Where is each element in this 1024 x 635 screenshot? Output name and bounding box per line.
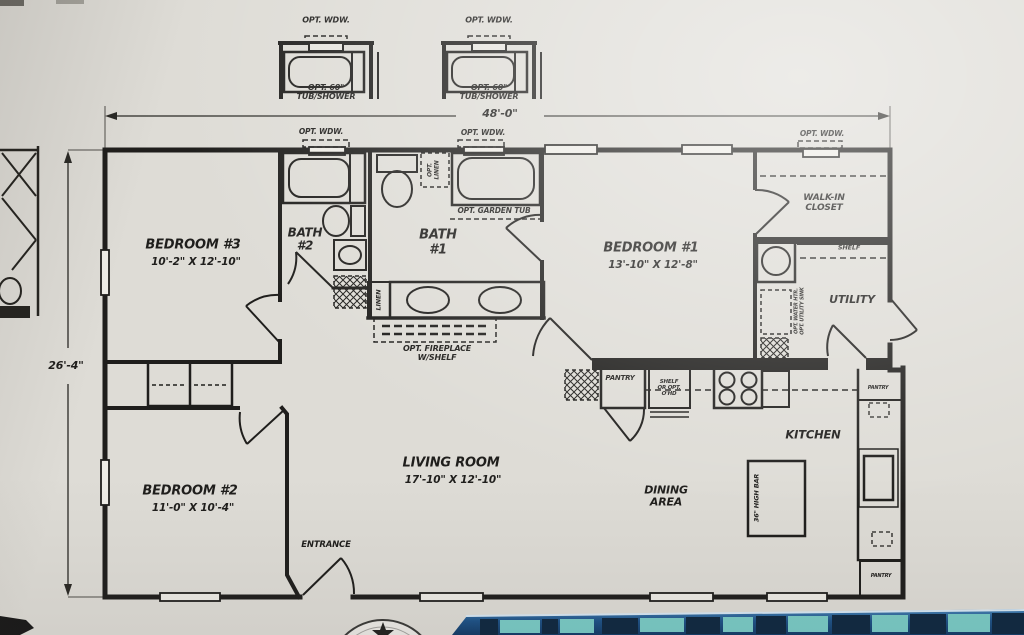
bedroom1-door [533,318,592,360]
bath2-toilet-tank [351,206,365,236]
vanity-sink-right [479,287,521,313]
label-high-bar: 36" HIGH BAR [753,474,760,522]
label-pantry-right: PANTRY [868,386,888,392]
label-pantry-bottom: PANTRY [871,574,891,580]
utility-door [827,325,866,358]
label-opt-window-detail1: OPT. WDW. [302,17,349,26]
entrance-door [303,558,354,595]
counter-section [762,371,789,407]
interior-walls [105,150,903,597]
room-dims-bedroom2: 11'-0" X 10'-4" [152,503,234,515]
bath1-toilet-tank [377,155,417,172]
scanned-floorplan-photo: OPT. WDW. OPT. 60" TUB/SHOWER OPT. WDW. … [0,0,1024,635]
label-opt-window-closet: OPT. WDW. [800,130,844,138]
label-tub-shower-detail2: OPT. 60" TUB/SHOWER [460,84,519,102]
utility-optional-appliance [761,338,788,358]
exterior-walls [105,150,903,597]
room-label-walkin-closet: WALK-IN CLOSET [803,193,844,213]
bath1-toilet [382,171,412,207]
refrigerator [864,456,893,500]
bath1-door [506,215,542,262]
walkin-closet-door [755,190,789,235]
bedroom3-door [246,295,280,343]
optional-dishwasher [565,370,598,400]
label-overall-depth: 26'-4" [48,360,83,372]
room-label-kitchen: KITCHEN [785,429,840,442]
vanity-sink-left [407,287,449,313]
label-opt-linen: OPT. LINEN [427,160,440,179]
water-heater [762,247,790,275]
label-entrance: ENTRANCE [301,541,350,551]
label-shelf: SHELF [838,244,860,251]
label-pantry-kitchen: PANTRY [605,375,634,383]
bath2-door [288,252,333,288]
optional-utility-sink [761,290,791,334]
label-opt-window-bath2: OPT. WDW. [299,128,343,136]
room-label-dining: DINING AREA [644,485,688,510]
label-opt-fireplace: OPT. FIREPLACE W/SHELF [403,345,471,363]
label-opt-water-heater: OPT. WATER HTR. OPT. UTILITY SINK [794,287,805,334]
room-label-utility: UTILITY [829,294,875,306]
bedroom2-closet [148,362,232,406]
label-linen: LINEN [375,290,382,311]
room-label-bath1: BATH #1 [419,228,457,257]
kitchen-fixtures [565,368,903,597]
bedroom2-door [240,410,284,444]
room-label-bedroom3: BEDROOM #3 [145,239,240,254]
label-tub-shower-detail1: OPT. 60" TUB/SHOWER [297,84,356,102]
left-edge-plan-fragment [0,0,84,318]
bottom-photo-content [0,609,1024,635]
bath2-optional-appliance [334,276,366,308]
room-label-living: LIVING ROOM [403,457,500,472]
label-opt-garden-tub: OPT. GARDEN TUB [457,207,530,215]
photo-strip [452,609,1024,635]
pantry-door [604,408,644,441]
label-overall-width: 48'-0" [482,108,517,120]
optional-fireplace [374,318,496,342]
room-label-bath2: BATH #2 [288,227,323,254]
utility-exterior-door [890,298,917,340]
room-dims-living: 17'-10" X 12'-10" [405,475,502,487]
room-label-bedroom1: BEDROOM #1 [603,242,698,257]
label-shelf-or-ohd: SHELF OR OPT. O'HD [657,379,680,397]
label-opt-window-gardentub: OPT. WDW. [461,129,505,137]
bath2-toilet [323,206,349,236]
label-opt-window-detail2: OPT. WDW. [465,17,512,26]
room-dims-bedroom3: 10'-2" X 12'-10" [151,257,240,269]
room-label-bedroom2: BEDROOM #2 [142,485,237,500]
room-dims-bedroom1: 13'-10" X 12'-8" [608,260,697,272]
dark-mark [0,616,34,635]
